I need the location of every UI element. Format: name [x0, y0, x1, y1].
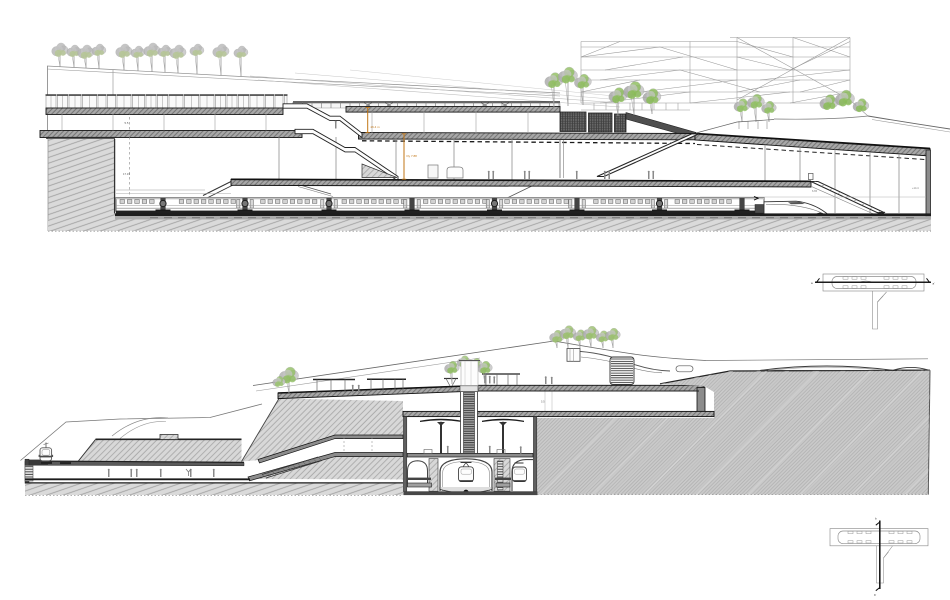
- svg-text:Dy 7.88: Dy 7.88: [407, 154, 418, 158]
- svg-text:6.65: 6.65: [812, 189, 818, 193]
- svg-text:5.5: 5.5: [125, 121, 129, 125]
- svg-text:26.4 m: 26.4 m: [371, 125, 381, 129]
- svg-text:17.19: 17.19: [123, 172, 130, 176]
- svg-text:+14.4: +14.4: [912, 186, 919, 190]
- svg-text:5.5: 5.5: [541, 400, 545, 404]
